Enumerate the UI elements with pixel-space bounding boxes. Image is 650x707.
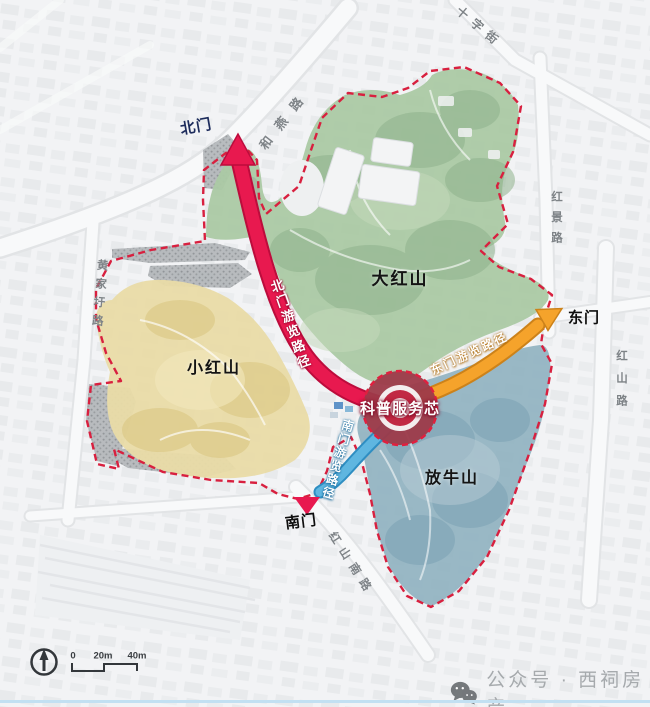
map-canvas [0,0,650,707]
center-service-core [363,371,437,445]
park-map: 十字街 和燕路 红景路 红山路 黄家圩路 红山南路 大红山 小红山 放牛山 北门… [0,0,650,707]
bottom-divider [0,700,650,703]
